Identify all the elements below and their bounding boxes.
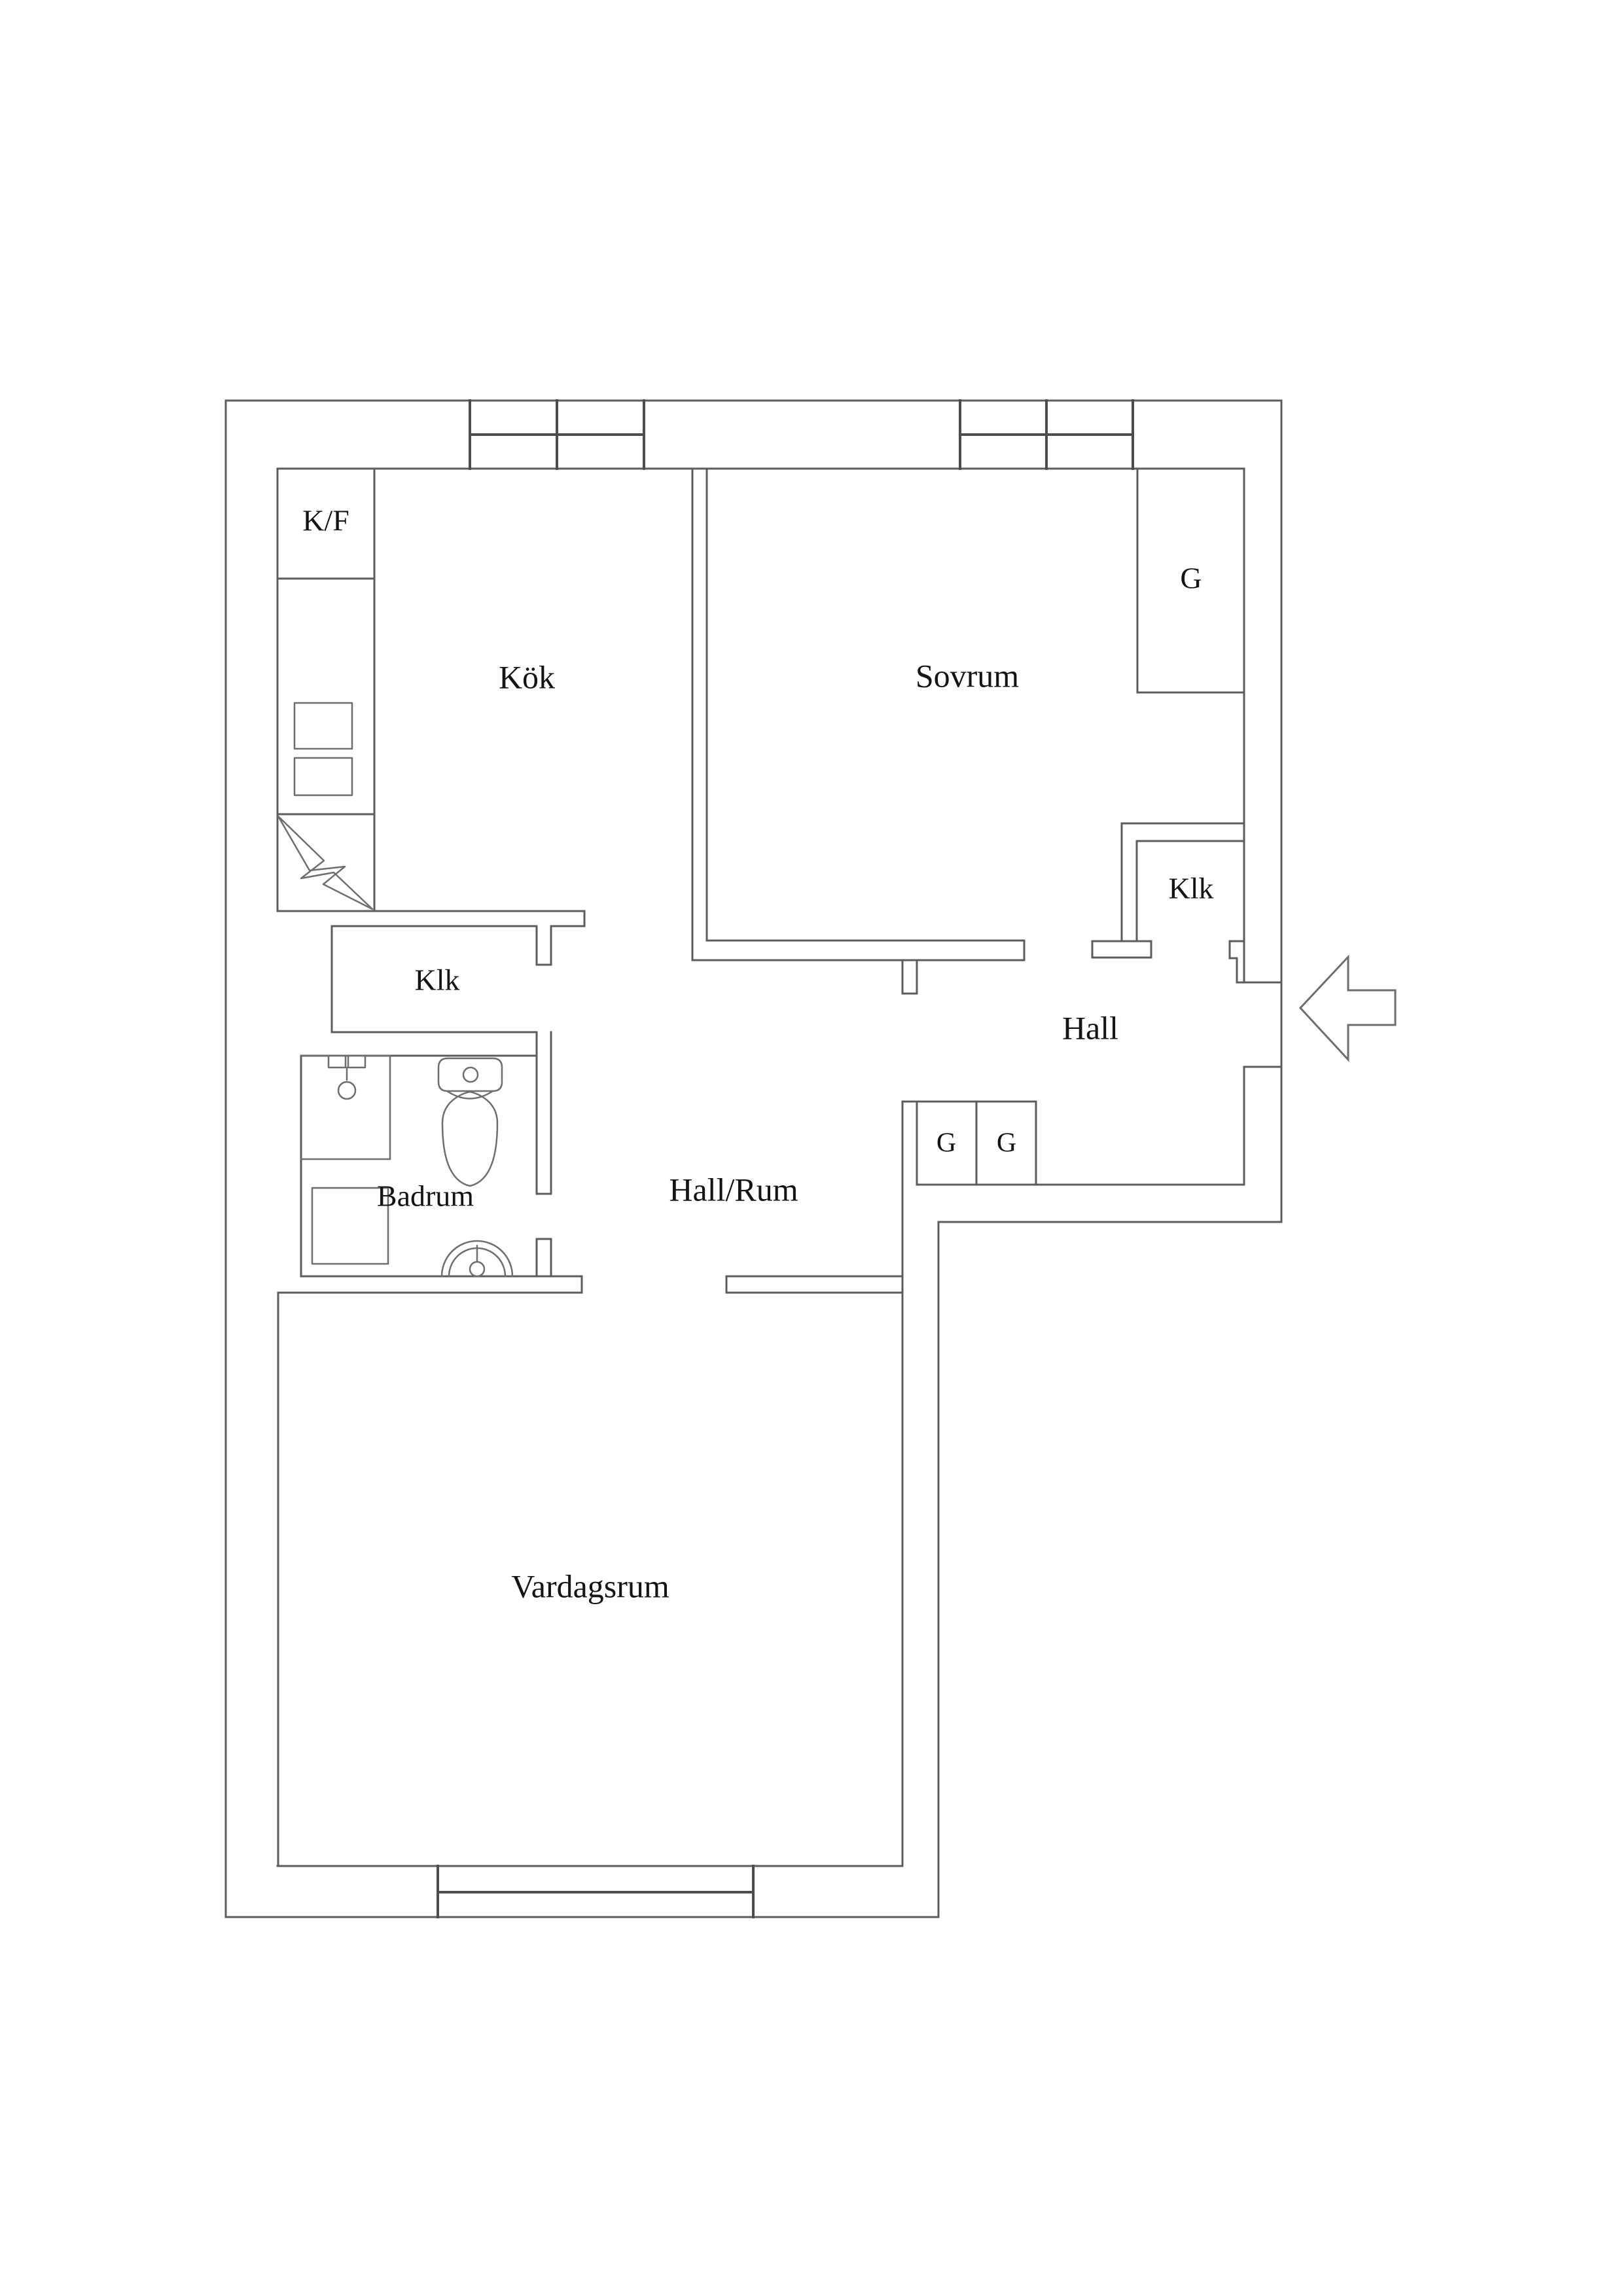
fixture-open-0: [301, 1056, 390, 1159]
wall-segment-44: [1092, 941, 1151, 958]
room-label-kf: K/F: [302, 504, 349, 537]
room-label-klk-kok: Klk: [415, 963, 460, 997]
entry-layer: [1300, 957, 1395, 1060]
fixture-2: [278, 816, 372, 909]
room-label-kok: Kök: [499, 658, 555, 695]
room-label-g-hall-2: G: [997, 1128, 1016, 1158]
labels-layer: K/FKökSovrumGKlkHallKlkHall/RumBadrumGGV…: [302, 504, 1213, 1605]
fixture-6: [442, 1092, 497, 1186]
fixture-0: [294, 703, 352, 749]
fixture-5: [438, 1058, 502, 1091]
room-label-hall-rum: Hall/Rum: [669, 1171, 798, 1208]
room-label-g-hall-1: G: [936, 1128, 956, 1158]
floorplan-drawing: K/FKökSovrumGKlkHallKlkHall/RumBadrumGGV…: [0, 0, 1623, 2296]
wall-segment-51: [1230, 941, 1237, 982]
windows-layer: [438, 401, 1133, 1917]
wall-segment-45: [902, 960, 917, 994]
fixture-circle-0: [338, 1082, 355, 1099]
room-label-badrum: Badrum: [377, 1179, 474, 1213]
room-label-vardagsrum: Vardagsrum: [511, 1568, 669, 1604]
entry-direction-arrow-icon: [1300, 957, 1395, 1060]
room-label-sovrum: Sovrum: [916, 657, 1019, 694]
room-label-g-sovrum: G: [1180, 562, 1202, 595]
fixture-1: [294, 758, 352, 795]
room-label-hall: Hall: [1062, 1009, 1118, 1046]
fixture-circle-2: [470, 1262, 484, 1276]
floorplan-page: K/FKökSovrumGKlkHallKlkHall/RumBadrumGGV…: [0, 0, 1623, 2296]
room-label-klk-sovrum: Klk: [1169, 872, 1214, 905]
fixture-4: [348, 1056, 365, 1067]
fixture-3: [329, 1056, 346, 1067]
